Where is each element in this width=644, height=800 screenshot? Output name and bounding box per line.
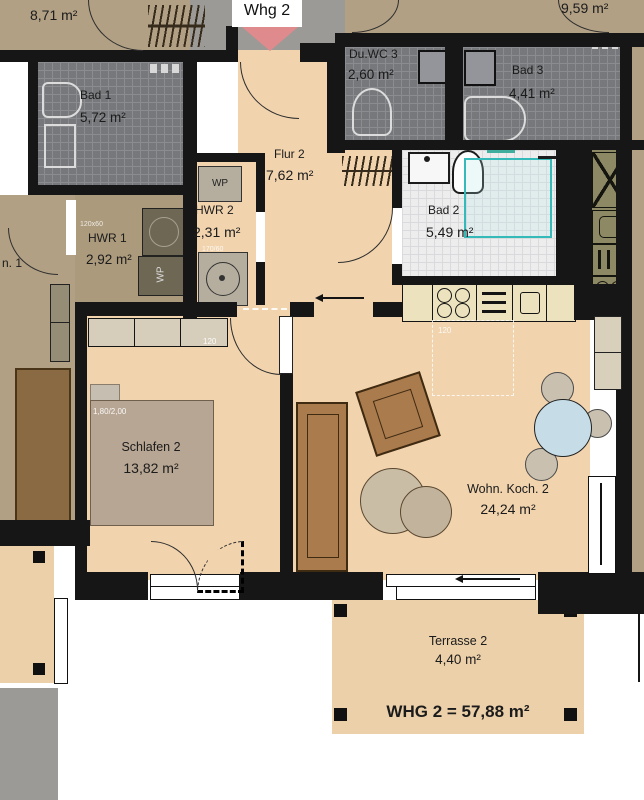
ground-area — [0, 688, 58, 800]
sliding-arrow-icon — [462, 578, 520, 580]
sliding-arrow-icon — [315, 294, 323, 302]
boundary-line — [638, 614, 640, 682]
unit-size-annotation: 170/60 — [202, 246, 223, 253]
bathtub-icon — [42, 82, 82, 118]
burner-icon — [455, 303, 470, 318]
room-label-block: Schlafen 2 13,82 m² — [91, 440, 211, 476]
wardrobe-icon — [50, 322, 70, 362]
door-opening — [256, 212, 265, 262]
bed-size-annotation: 1,80/2,00 — [93, 407, 126, 416]
wall — [226, 26, 238, 62]
apartment-total-area: WHG 2 = 57,88 m² — [332, 702, 584, 722]
sofa-seat-icon — [307, 414, 339, 558]
wall — [183, 302, 237, 317]
radiator-icon — [342, 156, 392, 186]
wall — [445, 33, 463, 143]
room-label-block: Wohn. Koch. 2 24,24 m² — [445, 482, 571, 517]
burner-icon — [455, 288, 470, 303]
room-name: Schlafen 2 — [91, 440, 211, 454]
wall — [335, 140, 644, 150]
burner-icon — [437, 288, 452, 303]
pocket-door-track — [243, 308, 287, 310]
terrace-post-icon — [33, 551, 45, 563]
washing-machine-icon — [150, 64, 182, 73]
door-opening — [66, 200, 76, 255]
room-area: 5,49 m² — [426, 224, 473, 240]
room-name: Flur 2 — [274, 148, 305, 162]
tap-icon — [424, 156, 430, 162]
rack-lines-icon — [482, 292, 506, 314]
wall — [335, 33, 644, 47]
wall — [240, 572, 383, 600]
wardrobe-icon — [594, 316, 622, 354]
sliding-door-opening — [314, 302, 373, 317]
kitchen-counter — [402, 284, 434, 322]
wall — [327, 43, 345, 153]
wall — [28, 185, 195, 195]
armchair-seat-icon — [373, 389, 423, 439]
neighbor-bed-icon — [15, 368, 71, 524]
kitchen-sink-icon — [512, 284, 548, 322]
wall — [183, 50, 197, 318]
radiator-icon — [148, 5, 205, 47]
room-area: 2,31 m² — [193, 224, 240, 240]
room-name: Bad 3 — [512, 64, 543, 78]
wall — [392, 276, 574, 285]
room-area: 2,92 m² — [86, 252, 132, 268]
window-pane-line — [600, 483, 602, 565]
right-floor-sliver — [632, 150, 644, 577]
window-icon — [588, 476, 616, 574]
unit-size-annotation: 120x60 — [80, 221, 103, 228]
wall — [290, 302, 314, 317]
room-area: 4,40 m² — [332, 652, 584, 668]
wardrobe-icon — [134, 318, 182, 347]
washing-machine-icon — [142, 208, 186, 256]
terrace-post-icon — [33, 663, 45, 675]
sliding-arrow-icon — [322, 297, 364, 299]
wp-label: WP — [156, 266, 167, 282]
entrance-marker-icon — [242, 27, 298, 51]
room-name: Terrasse 2 — [332, 634, 584, 648]
sofa-icon — [296, 402, 348, 572]
heat-pump-icon: WP — [198, 166, 242, 202]
neighbor-room-partial-label: n. 1 — [2, 257, 22, 271]
neighbor-room-area: 8,71 m² — [30, 7, 77, 23]
wall — [556, 150, 592, 284]
window-icon — [54, 598, 68, 684]
wardrobe-icon — [594, 352, 622, 390]
bathtub-icon — [464, 96, 526, 142]
cabinet-icon — [546, 284, 576, 322]
floor-plan: WP WP — [0, 0, 644, 800]
wall — [280, 372, 293, 576]
dishwasher-icon — [476, 284, 514, 322]
toilet-icon — [352, 88, 392, 136]
door-opening — [392, 208, 402, 264]
room-area: 4,41 m² — [509, 86, 555, 102]
washing-machine-icon — [198, 252, 248, 306]
room-label-block: Terrasse 2 4,40 m² — [332, 634, 584, 668]
wall — [574, 284, 616, 320]
shower-icon — [44, 124, 76, 168]
wall — [190, 153, 265, 162]
room-name: Du.WC 3 — [349, 48, 398, 62]
burner-icon — [437, 303, 452, 318]
room-area: 5,72 m² — [80, 110, 126, 126]
dining-table-icon — [534, 399, 592, 457]
room-name: Wohn. Koch. 2 — [445, 482, 571, 496]
wall — [75, 572, 148, 600]
entrance-label: Whg 2 — [232, 2, 302, 20]
wall — [28, 50, 38, 195]
entrance-door-opening — [238, 50, 300, 62]
wp-label: WP — [212, 178, 228, 189]
room-name: Bad 1 — [80, 89, 111, 103]
wall — [373, 302, 402, 317]
terrace-post-icon — [334, 604, 347, 617]
shower-area-icon — [464, 158, 552, 238]
door-leaf-icon — [279, 316, 293, 374]
drum-dot-icon — [219, 275, 225, 281]
sliding-door-panel — [396, 586, 536, 600]
wall — [620, 33, 632, 150]
room-area: 24,24 m² — [445, 501, 571, 517]
hob-icon — [432, 284, 478, 322]
wall — [75, 302, 197, 316]
room-area: 2,60 m² — [348, 67, 394, 83]
room-name: HWR 2 — [195, 204, 234, 218]
door-width-annotation: 120 — [203, 337, 216, 346]
sink-icon — [464, 50, 496, 86]
wardrobe-icon — [88, 318, 136, 347]
room-area: 7,62 m² — [266, 167, 313, 183]
room-area: 13,82 m² — [91, 460, 211, 476]
room-name: Bad 2 — [428, 204, 459, 218]
drum-icon — [149, 217, 179, 247]
neighbor-room-area: 9,59 m² — [561, 0, 608, 16]
door-width-annotation: 120 — [438, 326, 451, 335]
sliding-arrow-icon — [455, 575, 463, 583]
right-floor-sliver-top — [632, 33, 644, 150]
wall — [75, 315, 87, 600]
neighbor-terrace — [0, 545, 54, 683]
basin-icon — [520, 292, 540, 314]
wall — [0, 520, 90, 546]
heat-pump-icon: WP — [138, 256, 186, 296]
entrance-label-box: Whg 2 — [232, 0, 302, 27]
room-name: HWR 1 — [88, 232, 127, 246]
wardrobe-icon — [50, 284, 70, 324]
shaft — [197, 62, 238, 153]
wall — [538, 572, 644, 614]
